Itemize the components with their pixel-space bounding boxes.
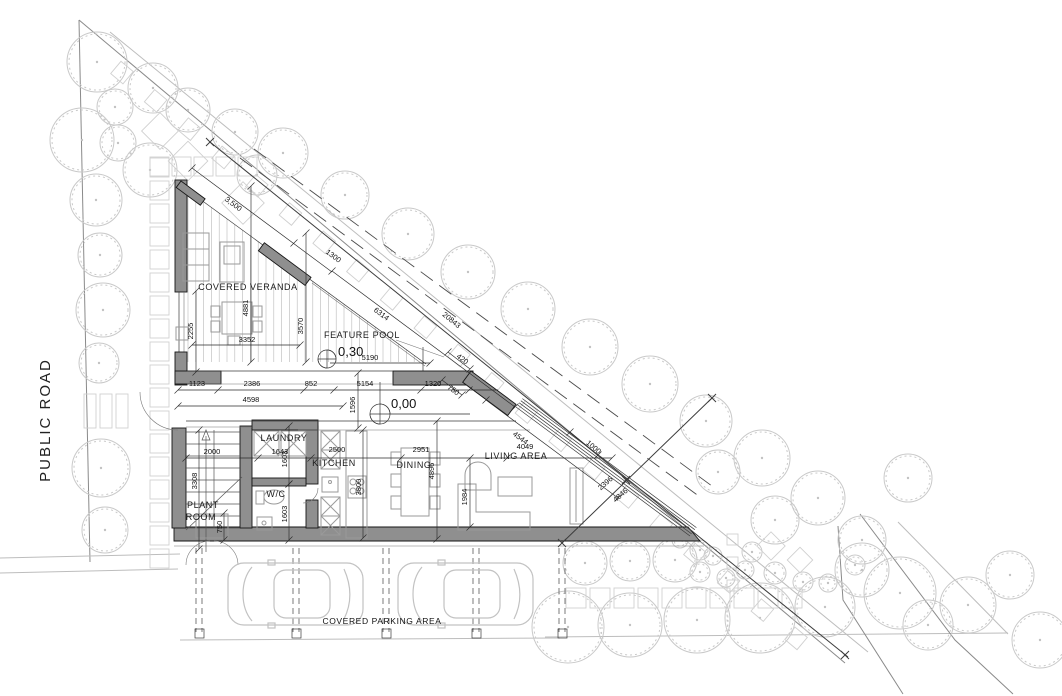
level-value: 0,30 (338, 344, 363, 359)
level-marker-quadrant (370, 414, 380, 424)
dimension-label: 3800 (354, 479, 363, 496)
tree-center (1039, 639, 1041, 641)
parking-rear-edge (180, 638, 560, 640)
tree-center (99, 254, 101, 256)
plant-room-door-swing (186, 541, 210, 565)
paver-stone (150, 549, 169, 568)
tree-center (567, 626, 569, 628)
dimension-label: 1984 (460, 489, 469, 506)
tree-center (98, 362, 100, 364)
dimension-label: 1603 (280, 506, 289, 523)
dim-tick (459, 392, 466, 399)
tree-center (589, 346, 591, 348)
tree-center (629, 560, 631, 562)
roof-overhang-line (254, 149, 716, 489)
paver-stone (686, 588, 706, 608)
dimension-label: 5154 (357, 379, 374, 388)
tree-center (751, 551, 753, 553)
dimension-label: 6314 (372, 305, 391, 322)
tree-center (527, 308, 529, 310)
tree-center (927, 624, 929, 626)
dimension-label: 4598 (243, 395, 260, 404)
wall-laundry-wc (252, 478, 306, 486)
veranda-chair (253, 321, 262, 332)
dimension-label: 1123 (189, 379, 205, 388)
tree-center (699, 571, 701, 573)
tree-center (705, 420, 707, 422)
dimension-label: 3,500 (223, 195, 243, 213)
paver-stone (150, 342, 169, 361)
glazing-line (521, 401, 695, 530)
paver-stone (150, 388, 169, 407)
tree-center (104, 529, 106, 531)
glazing-line (518, 405, 692, 534)
sink-tap (329, 481, 332, 484)
room-label-covered-veranda: COVERED VERANDA (198, 282, 298, 292)
tree-center (774, 519, 776, 521)
road-marking (100, 394, 112, 428)
tree-center (100, 467, 102, 469)
wall-laundry-east (306, 426, 318, 484)
tree-center (854, 564, 856, 566)
dimension-label: 4896 (427, 463, 436, 480)
level-marker-quadrant (318, 359, 327, 368)
wall-window-band (258, 243, 311, 286)
dim-tick (445, 349, 452, 356)
tree-center (152, 87, 154, 89)
tree-center (467, 271, 469, 273)
kitchen-sink (322, 477, 338, 492)
tree-center (817, 497, 819, 499)
dimension-label: 2396 (596, 474, 614, 492)
level-marker-quadrant (380, 404, 390, 414)
paver-stone (150, 526, 169, 545)
paver-stone (150, 157, 169, 176)
paver-stone (150, 227, 169, 246)
paver-stone (414, 316, 437, 339)
tree-center (717, 471, 719, 473)
tree-center (234, 131, 236, 133)
tree-center (282, 152, 284, 154)
dimension-label: 1596 (348, 397, 357, 414)
tree-center (81, 139, 83, 141)
tree-center (95, 199, 97, 201)
tree-center (649, 383, 651, 385)
level-value: 0,00 (391, 396, 416, 411)
tree-center (696, 619, 698, 621)
paver-stone (111, 61, 134, 84)
tree-center (774, 572, 776, 574)
paver-stone (150, 296, 169, 315)
room-label-plant-room: ROOM (186, 512, 216, 522)
dining-chair (391, 496, 401, 509)
road-edge (0, 569, 178, 573)
site-plan-drawing: 0,300,00COVERED VERANDAFEATURE POOLLAUND… (0, 0, 1062, 696)
dimension-label: 1603 (280, 451, 289, 468)
paver-stone (614, 588, 634, 608)
site-edge-south (545, 633, 1008, 637)
tree-center (407, 233, 409, 235)
glazing-line (519, 403, 693, 532)
room-label-feature-pool: FEATURE POOL (324, 330, 400, 340)
tree-center (899, 592, 901, 594)
driveway-edge (838, 526, 903, 694)
armchair (465, 462, 491, 490)
paver-stone (178, 118, 201, 141)
site-boundary-diagonal (79, 20, 845, 663)
dimension-label: 2386 (244, 379, 261, 388)
tree-center (96, 61, 98, 63)
tree-center (1009, 574, 1011, 576)
glazing-line (516, 407, 690, 536)
tree-center (102, 309, 104, 311)
tree-center (861, 539, 863, 541)
room-label-kitchen: KITCHEN (312, 458, 356, 468)
road-marking (116, 394, 128, 428)
veranda-chair (253, 306, 262, 317)
dimension-label: 1300 (324, 247, 343, 264)
boundary-dim-line (210, 142, 848, 657)
basin-drain (262, 521, 266, 525)
veranda-chair (211, 306, 220, 317)
dimension-label: 2000 (204, 447, 221, 456)
coffee-table (498, 477, 532, 496)
tree-center (674, 559, 676, 561)
tree-center (629, 624, 631, 626)
tree (1012, 612, 1062, 668)
car-hood-line (243, 567, 252, 621)
glazing-line (522, 399, 696, 528)
tree-center (907, 477, 909, 479)
car-rear-line (514, 569, 520, 619)
tree-center (699, 549, 701, 551)
wall-west-lower (172, 428, 186, 528)
tree-center (117, 142, 119, 144)
tree-center (712, 555, 714, 557)
paver-stone (150, 250, 169, 269)
paver-stone (150, 319, 169, 338)
site-edge-southeast (898, 522, 1008, 634)
paver-stone (150, 204, 169, 223)
floor-plan-canvas: 0,300,00COVERED VERANDAFEATURE POOLLAUND… (0, 0, 1062, 696)
tree-center (344, 194, 346, 196)
veranda-chair (211, 321, 220, 332)
tree-center (824, 606, 826, 608)
dimension-label: 852 (305, 379, 318, 388)
tree-center (802, 581, 804, 583)
paver-stone (150, 434, 169, 453)
paver-stone (150, 457, 169, 476)
paver-stone (380, 288, 403, 311)
site-label-public-road: PUBLIC ROAD (37, 358, 54, 482)
paver-stone (150, 365, 169, 384)
paver-stone (194, 157, 213, 176)
dimension-label: 2255 (186, 323, 195, 340)
paver-stone (347, 259, 370, 282)
dimension-label: 3570 (296, 318, 305, 335)
dimension-label: 1320 (425, 379, 442, 388)
dimension-label: 2500 (329, 445, 346, 454)
road-marking (84, 394, 96, 428)
paver-stone (727, 534, 738, 545)
dining-chair (391, 474, 401, 487)
paver-diamond (142, 113, 179, 150)
tree-center (187, 109, 189, 111)
dimension-label: 2951 (413, 445, 430, 454)
dimension-label: 750 (215, 521, 224, 534)
paver-stone (279, 203, 302, 226)
dimension-label: 20843 (441, 310, 463, 330)
tree-center (827, 582, 829, 584)
site-label-covered-parking: COVERED PARKING AREA (322, 616, 441, 626)
tree-center (761, 457, 763, 459)
paver-stone (150, 158, 169, 177)
plant-room-door-swing (214, 541, 238, 565)
paver-diamond (787, 547, 812, 572)
car-hood-line (413, 567, 422, 621)
dimension-label: 5190 (362, 353, 379, 362)
dimension-label: 3308 (190, 473, 199, 490)
tree-center (967, 604, 969, 606)
wall-west-veranda (175, 180, 187, 292)
room-label-wc: W/C (266, 489, 285, 499)
wall-wc-east (306, 500, 318, 528)
room-label-laundry: LAUNDRY (260, 433, 307, 443)
tree-center (114, 106, 116, 108)
wall-laundry-north (252, 420, 318, 430)
dimension-label: 4881 (241, 300, 250, 317)
car-cabin (444, 570, 500, 618)
tree-foliage (1014, 614, 1062, 666)
room-label-plant-room: PLANT (187, 500, 219, 510)
terrace-sill-angled (463, 371, 516, 416)
car-rear-line (344, 569, 350, 619)
tree-center (744, 569, 746, 571)
room-label-living-area: LIVING AREA (485, 451, 548, 461)
tree-center (584, 562, 586, 564)
dining-chair (430, 496, 440, 509)
paver-stone (150, 273, 169, 292)
dimension-label: 3352 (239, 335, 256, 344)
lounger-cushion (224, 246, 240, 264)
toilet-cistern (256, 491, 264, 504)
car-cabin (274, 570, 330, 618)
tree-center (725, 577, 727, 579)
paver-stone (150, 480, 169, 499)
paver-stone (150, 503, 169, 522)
